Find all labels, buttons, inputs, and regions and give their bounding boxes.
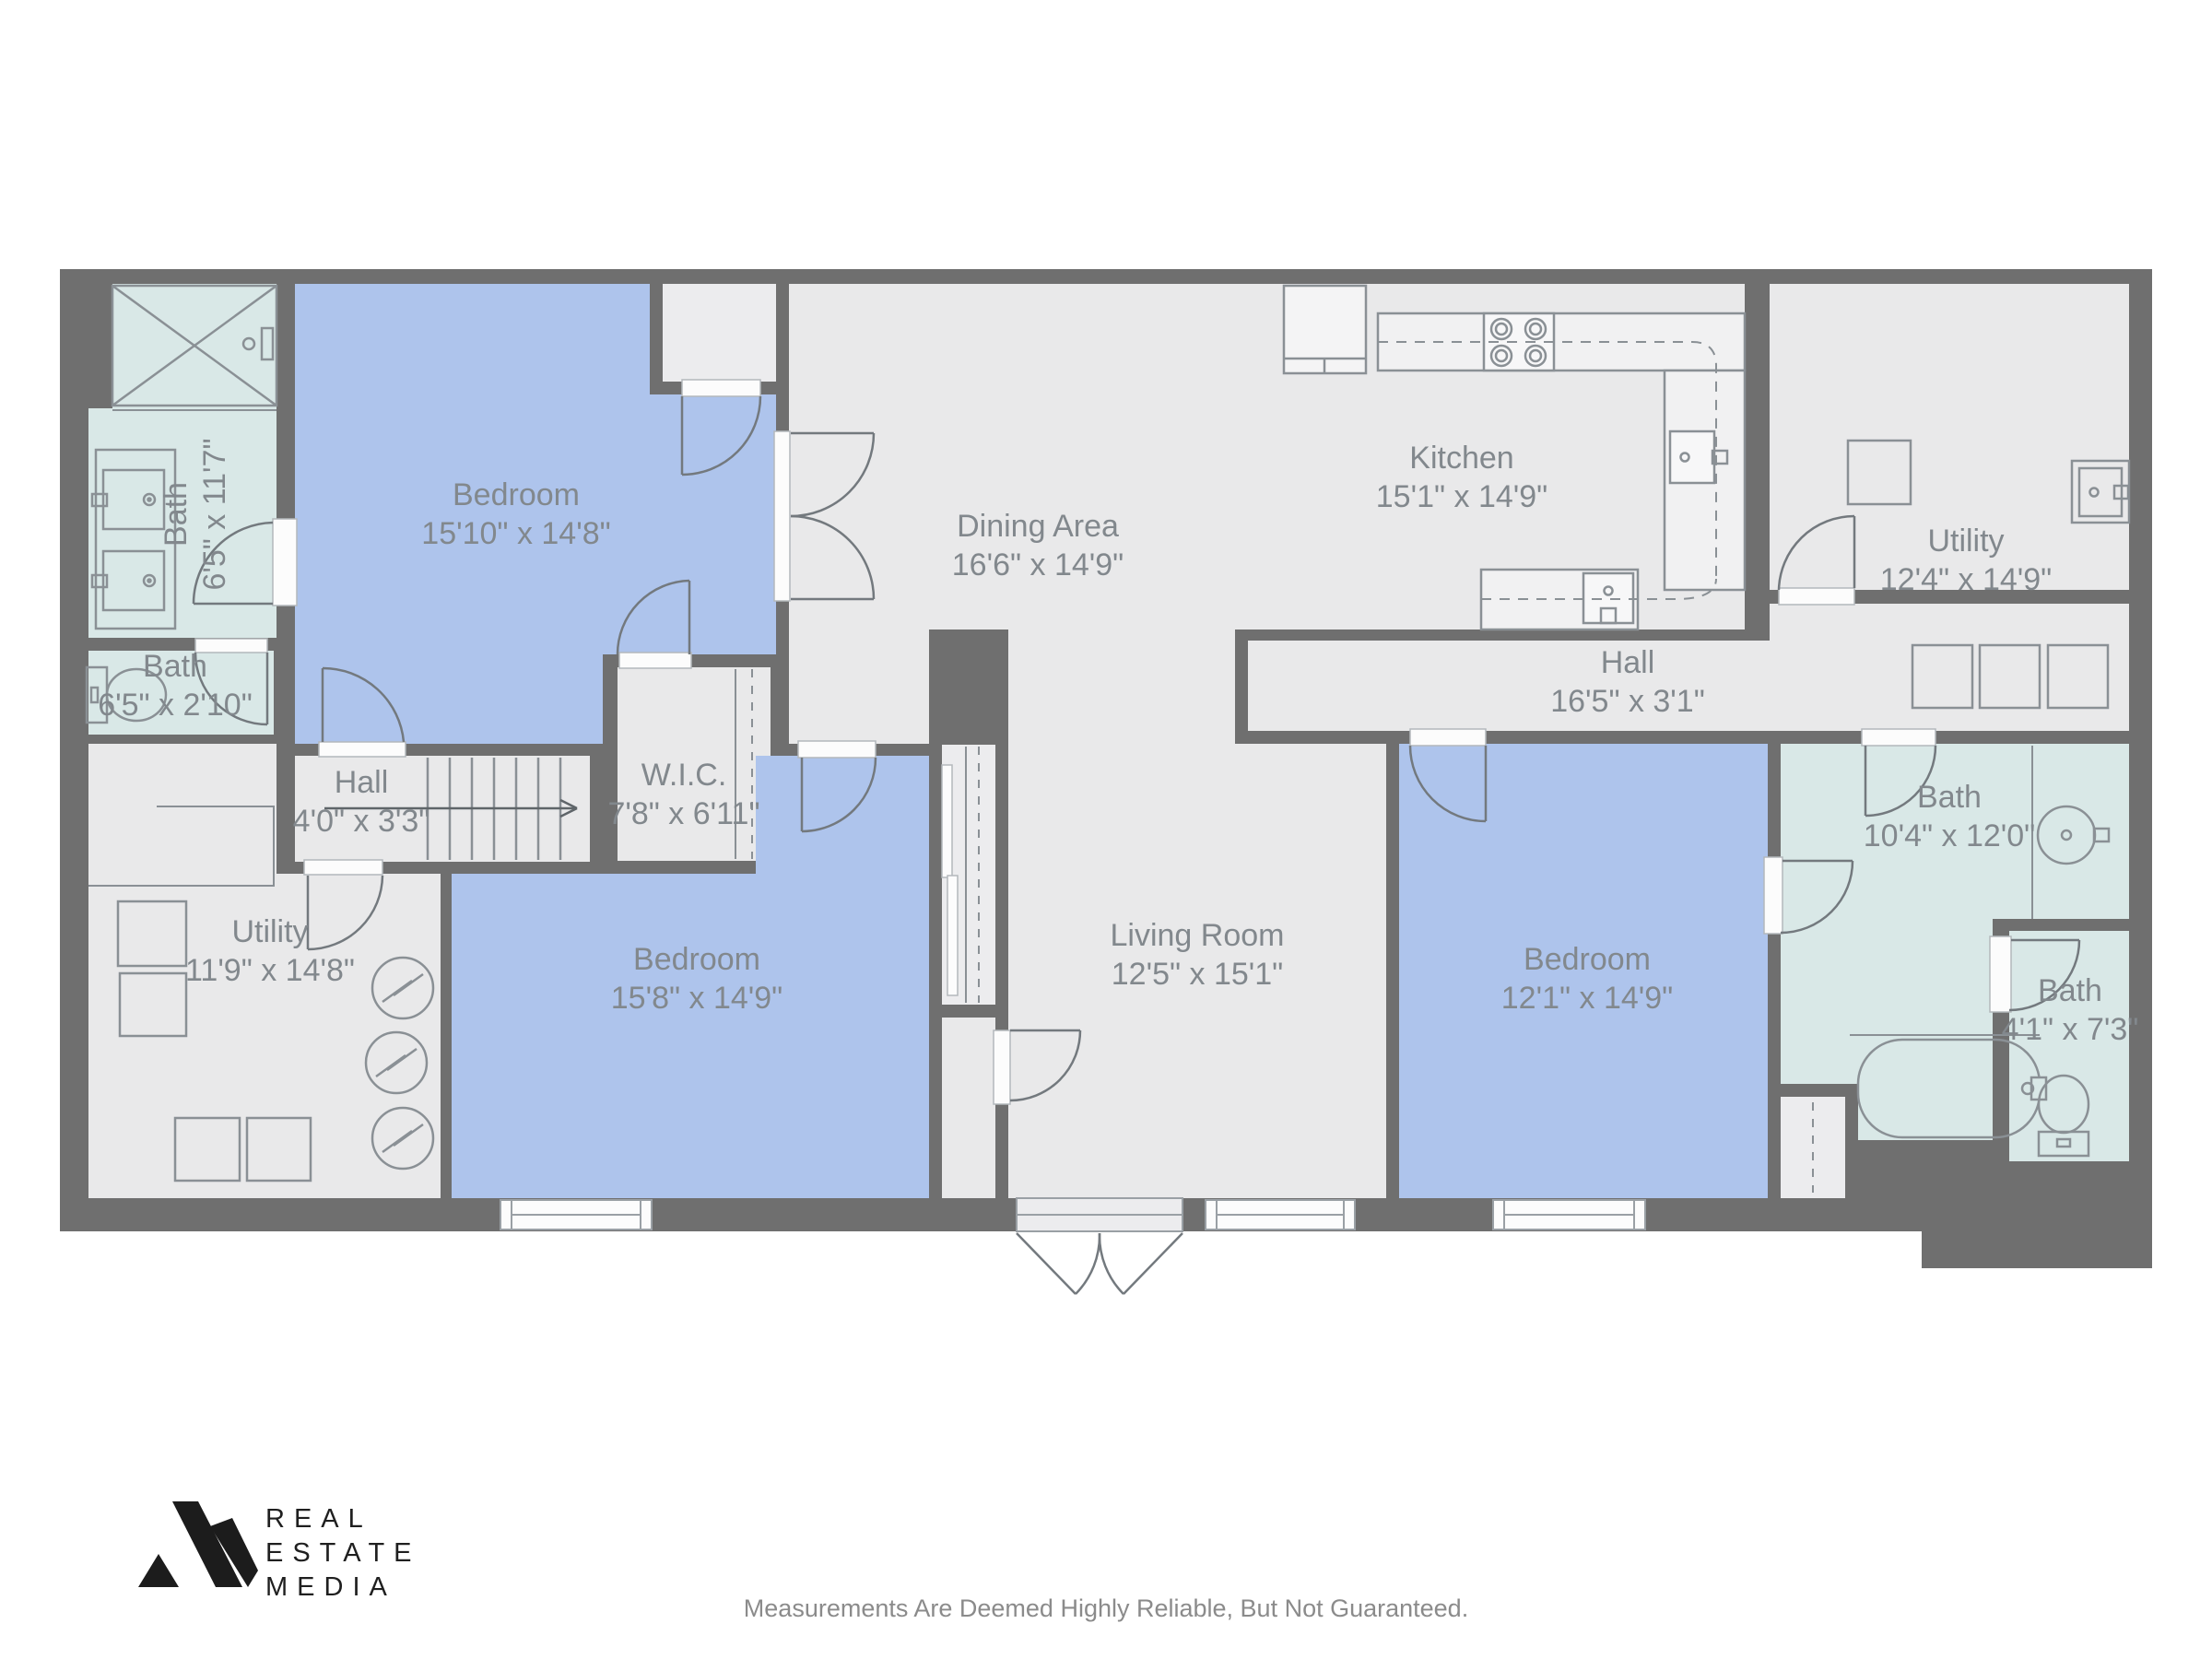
water-heater-icon [366,1032,427,1093]
window-bedroom-3 [1493,1200,1645,1230]
door-wic [618,581,691,668]
window-bedroom-2 [500,1200,652,1230]
water-heater-icon [372,1108,433,1169]
room-label-hall-left: Hall4'0" x 3'3" [293,763,430,841]
room-label-bedroom-1: Bedroom15'10" x 14'8" [421,476,610,553]
door-hall-left-bedroom [319,668,406,757]
door-bedroom-3-bath [1764,857,1853,934]
door-bedroom-1-double [774,431,874,601]
room-label-utility-left: Utility11'9" x 14'8" [185,912,355,990]
brand-logo-mark-icon [129,1488,258,1607]
room-label-bath-right: Bath10'4" x 12'0" [1864,778,2035,855]
room-label-kitchen: Kitchen15'1" x 14'9" [1376,439,1547,516]
water-heater-icon [372,958,433,1018]
room-label-living: Living Room12'5" x 15'1" [1111,916,1285,994]
brand-logo-text-line: REAL [265,1502,421,1536]
room-label-bath-small: Bath4'1" x 7'3" [2002,971,2139,1049]
kitchen-sink-peninsula-icon [1583,573,1633,623]
room-label-bedroom-2: Bedroom15'8" x 14'9" [611,940,782,1018]
kitchen-sink-right-icon [1670,431,1714,483]
kitchen-counter-top [1378,313,1745,371]
bedroom-2-closet-rod-icon [942,747,979,1003]
room-label-bath-main: Bath6'5" x 11'7" [157,438,234,590]
round-sink-icon [2038,806,2109,864]
room-label-hall-right: Hall16'5" x 3'1" [1550,643,1705,721]
door-utility-right [1779,516,1854,605]
shower-icon [112,286,276,410]
room-label-utility-right: Utility12'4" x 14'9" [1880,522,2052,599]
room-label-wic: W.I.C.7'8" x 6'11" [607,756,759,833]
utility-sink-icon [2072,461,2129,523]
room-label-bath-wc: Bath6'5" x 2'10" [98,647,253,724]
door-bedroom-2 [798,741,876,831]
door-bedroom-3 [1410,729,1486,821]
counter-outline [88,806,274,886]
door-vestibule-living [994,1030,1080,1104]
door-closet-1 [682,380,760,475]
room-label-dining: Dining Area16'6" x 14'9" [952,507,1124,584]
bathtub-icon [1858,1040,2046,1137]
disclaimer-text: Measurements Are Deemed Highly Reliable,… [0,1594,2212,1623]
entry-double-door [1017,1198,1182,1294]
brand-logo-text-line: ESTATE [265,1536,421,1571]
window-living [1206,1200,1355,1230]
brand-logo: REAL ESTATE MEDIA [129,1488,608,1607]
floor-plan-page: Bath6'5" x 11'7" Bath6'5" x 2'10" Bedroo… [0,0,2212,1659]
room-label-bedroom-3: Bedroom12'1" x 14'9" [1501,940,1673,1018]
